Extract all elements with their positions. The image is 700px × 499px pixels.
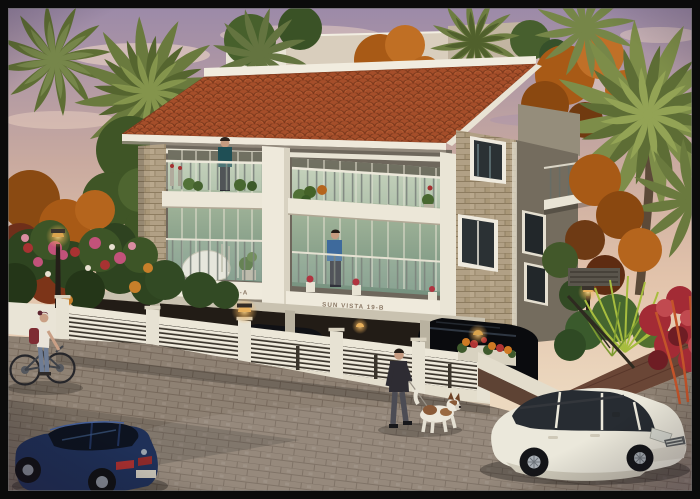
framed-render: SUN VISTA 19-A: [0, 0, 700, 499]
sun-vista-building-render: SUN VISTA 19-A: [0, 0, 700, 499]
vignette: [8, 8, 692, 491]
